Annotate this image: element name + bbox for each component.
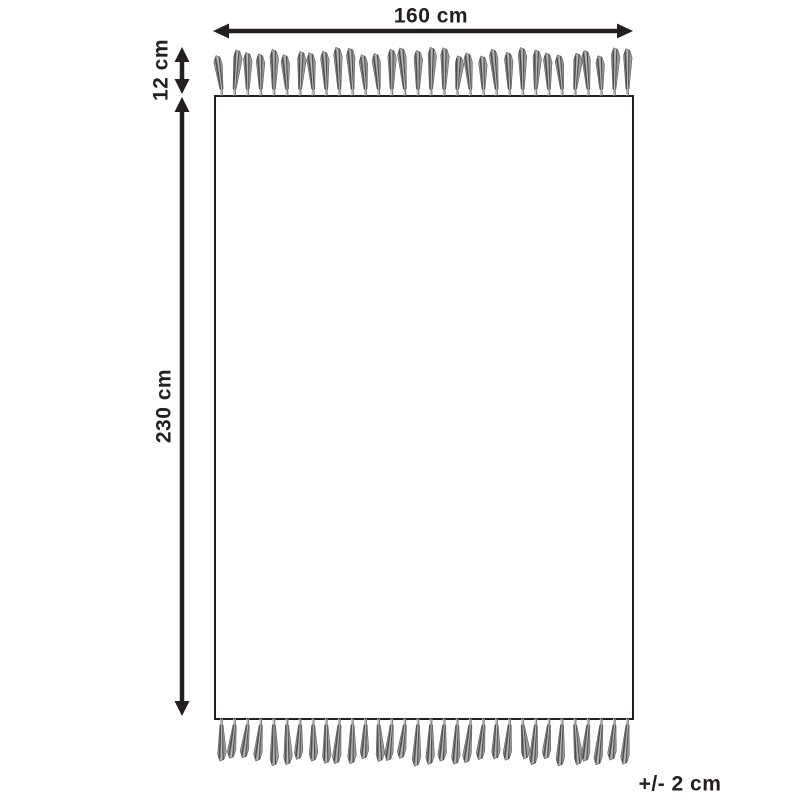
height-dimension-label: 230 cm <box>154 369 175 443</box>
diagram-canvas <box>0 0 800 800</box>
width-dimension-label: 160 cm <box>394 6 468 27</box>
fringe-arrow-top-head-icon <box>175 47 190 62</box>
width-arrow-left-head-icon <box>213 24 229 39</box>
height-arrow-top-head-icon <box>175 97 190 112</box>
rug-rectangle <box>215 96 633 719</box>
rug-height-dimension-arrow <box>175 97 190 716</box>
rug-dimension-diagram: 160 cm 12 cm 230 cm +/- 2 cm <box>0 0 800 800</box>
height-arrow-bottom-head-icon <box>175 701 190 716</box>
fringe-height-dimension-arrow <box>175 47 190 94</box>
fringe-length-dimension-label: 12 cm <box>151 39 172 101</box>
top-fringe <box>214 47 632 95</box>
tolerance-label: +/- 2 cm <box>639 774 722 795</box>
fringe-arrow-bottom-head-icon <box>175 79 190 94</box>
rug-outline <box>215 96 633 719</box>
width-arrow-right-head-icon <box>617 24 633 39</box>
bottom-fringe <box>218 719 630 766</box>
